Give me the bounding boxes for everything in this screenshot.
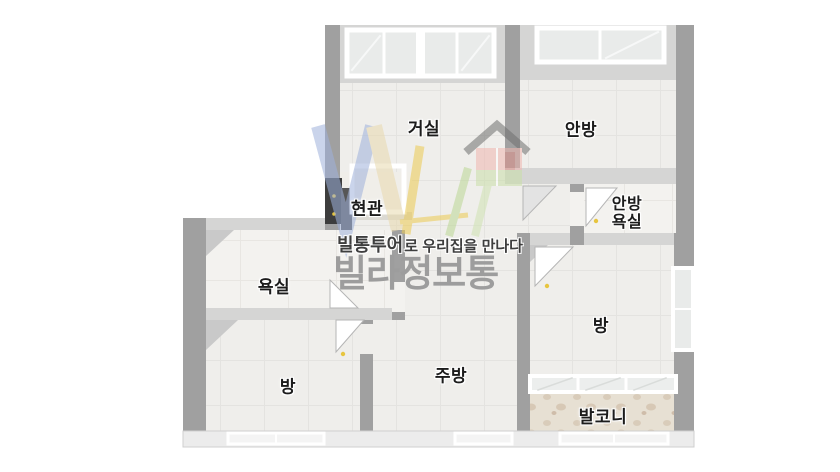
room-label-bedroom-left: 방 (280, 377, 296, 396)
bedroom-right-door-handle (545, 284, 549, 288)
room-right-top-wall (517, 233, 690, 245)
master-bedroom-window (537, 28, 664, 62)
kitchen-room-divider (517, 233, 530, 445)
left-wall-bottom-block (183, 218, 206, 437)
balcony-bottom-window (560, 433, 668, 444)
room-label-entrance: 현관 (351, 199, 383, 218)
right-wall-top-block (676, 25, 694, 245)
kitchen-corridor-floor (373, 320, 405, 431)
master-bathroom-door-handle (594, 219, 598, 223)
room-label-balcony: 발코니 (579, 407, 627, 426)
bathroom-bottom-wall (183, 308, 405, 320)
room-label-living: 거실 (408, 119, 440, 138)
balcony-sliding-door (530, 376, 676, 392)
room-label-master-bathroom: 안방 욕실 (612, 196, 642, 232)
bedroom-left-bottom-window (228, 433, 324, 444)
room-label-master-bathroom-line2: 욕실 (612, 214, 642, 232)
bedroom-left-door-opening (360, 324, 373, 354)
kitchen-bottom-window (455, 433, 512, 444)
room-label-master-bathroom-line1: 안방 (612, 196, 642, 214)
bedroom-bottom-wall (505, 168, 690, 184)
bedroom-right-window (673, 268, 693, 350)
living-window (347, 30, 494, 76)
room-label-master-bedroom: 안방 (565, 120, 597, 139)
room-label-kitchen: 주방 (435, 366, 467, 385)
bathroom-top-wall (183, 218, 340, 230)
floorplan-canvas: 거실 안방 현관 안방 욕실 욕실 방 주방 방 발코니 빌통투어 로 우리집을… (0, 0, 840, 472)
master-bedroom-floor (520, 80, 676, 168)
master-bath-door-opening (570, 192, 584, 226)
bedroom-left-door-handle (341, 352, 345, 356)
room-label-bathroom: 욕실 (258, 277, 290, 296)
watermark-brand: 빌라정보통 (333, 254, 498, 295)
room-label-bedroom-right: 방 (593, 316, 609, 335)
